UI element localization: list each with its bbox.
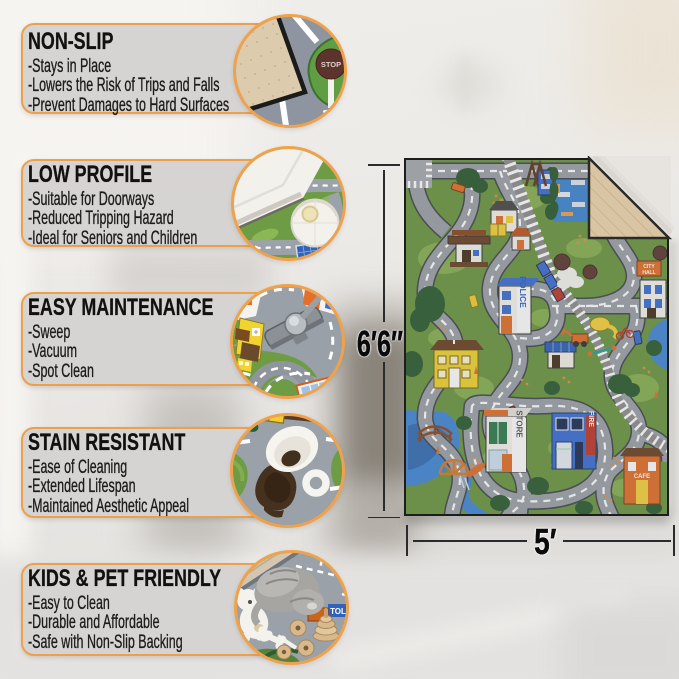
svg-text:STOP: STOP <box>321 60 341 69</box>
svg-text:TOL: TOL <box>330 607 346 616</box>
